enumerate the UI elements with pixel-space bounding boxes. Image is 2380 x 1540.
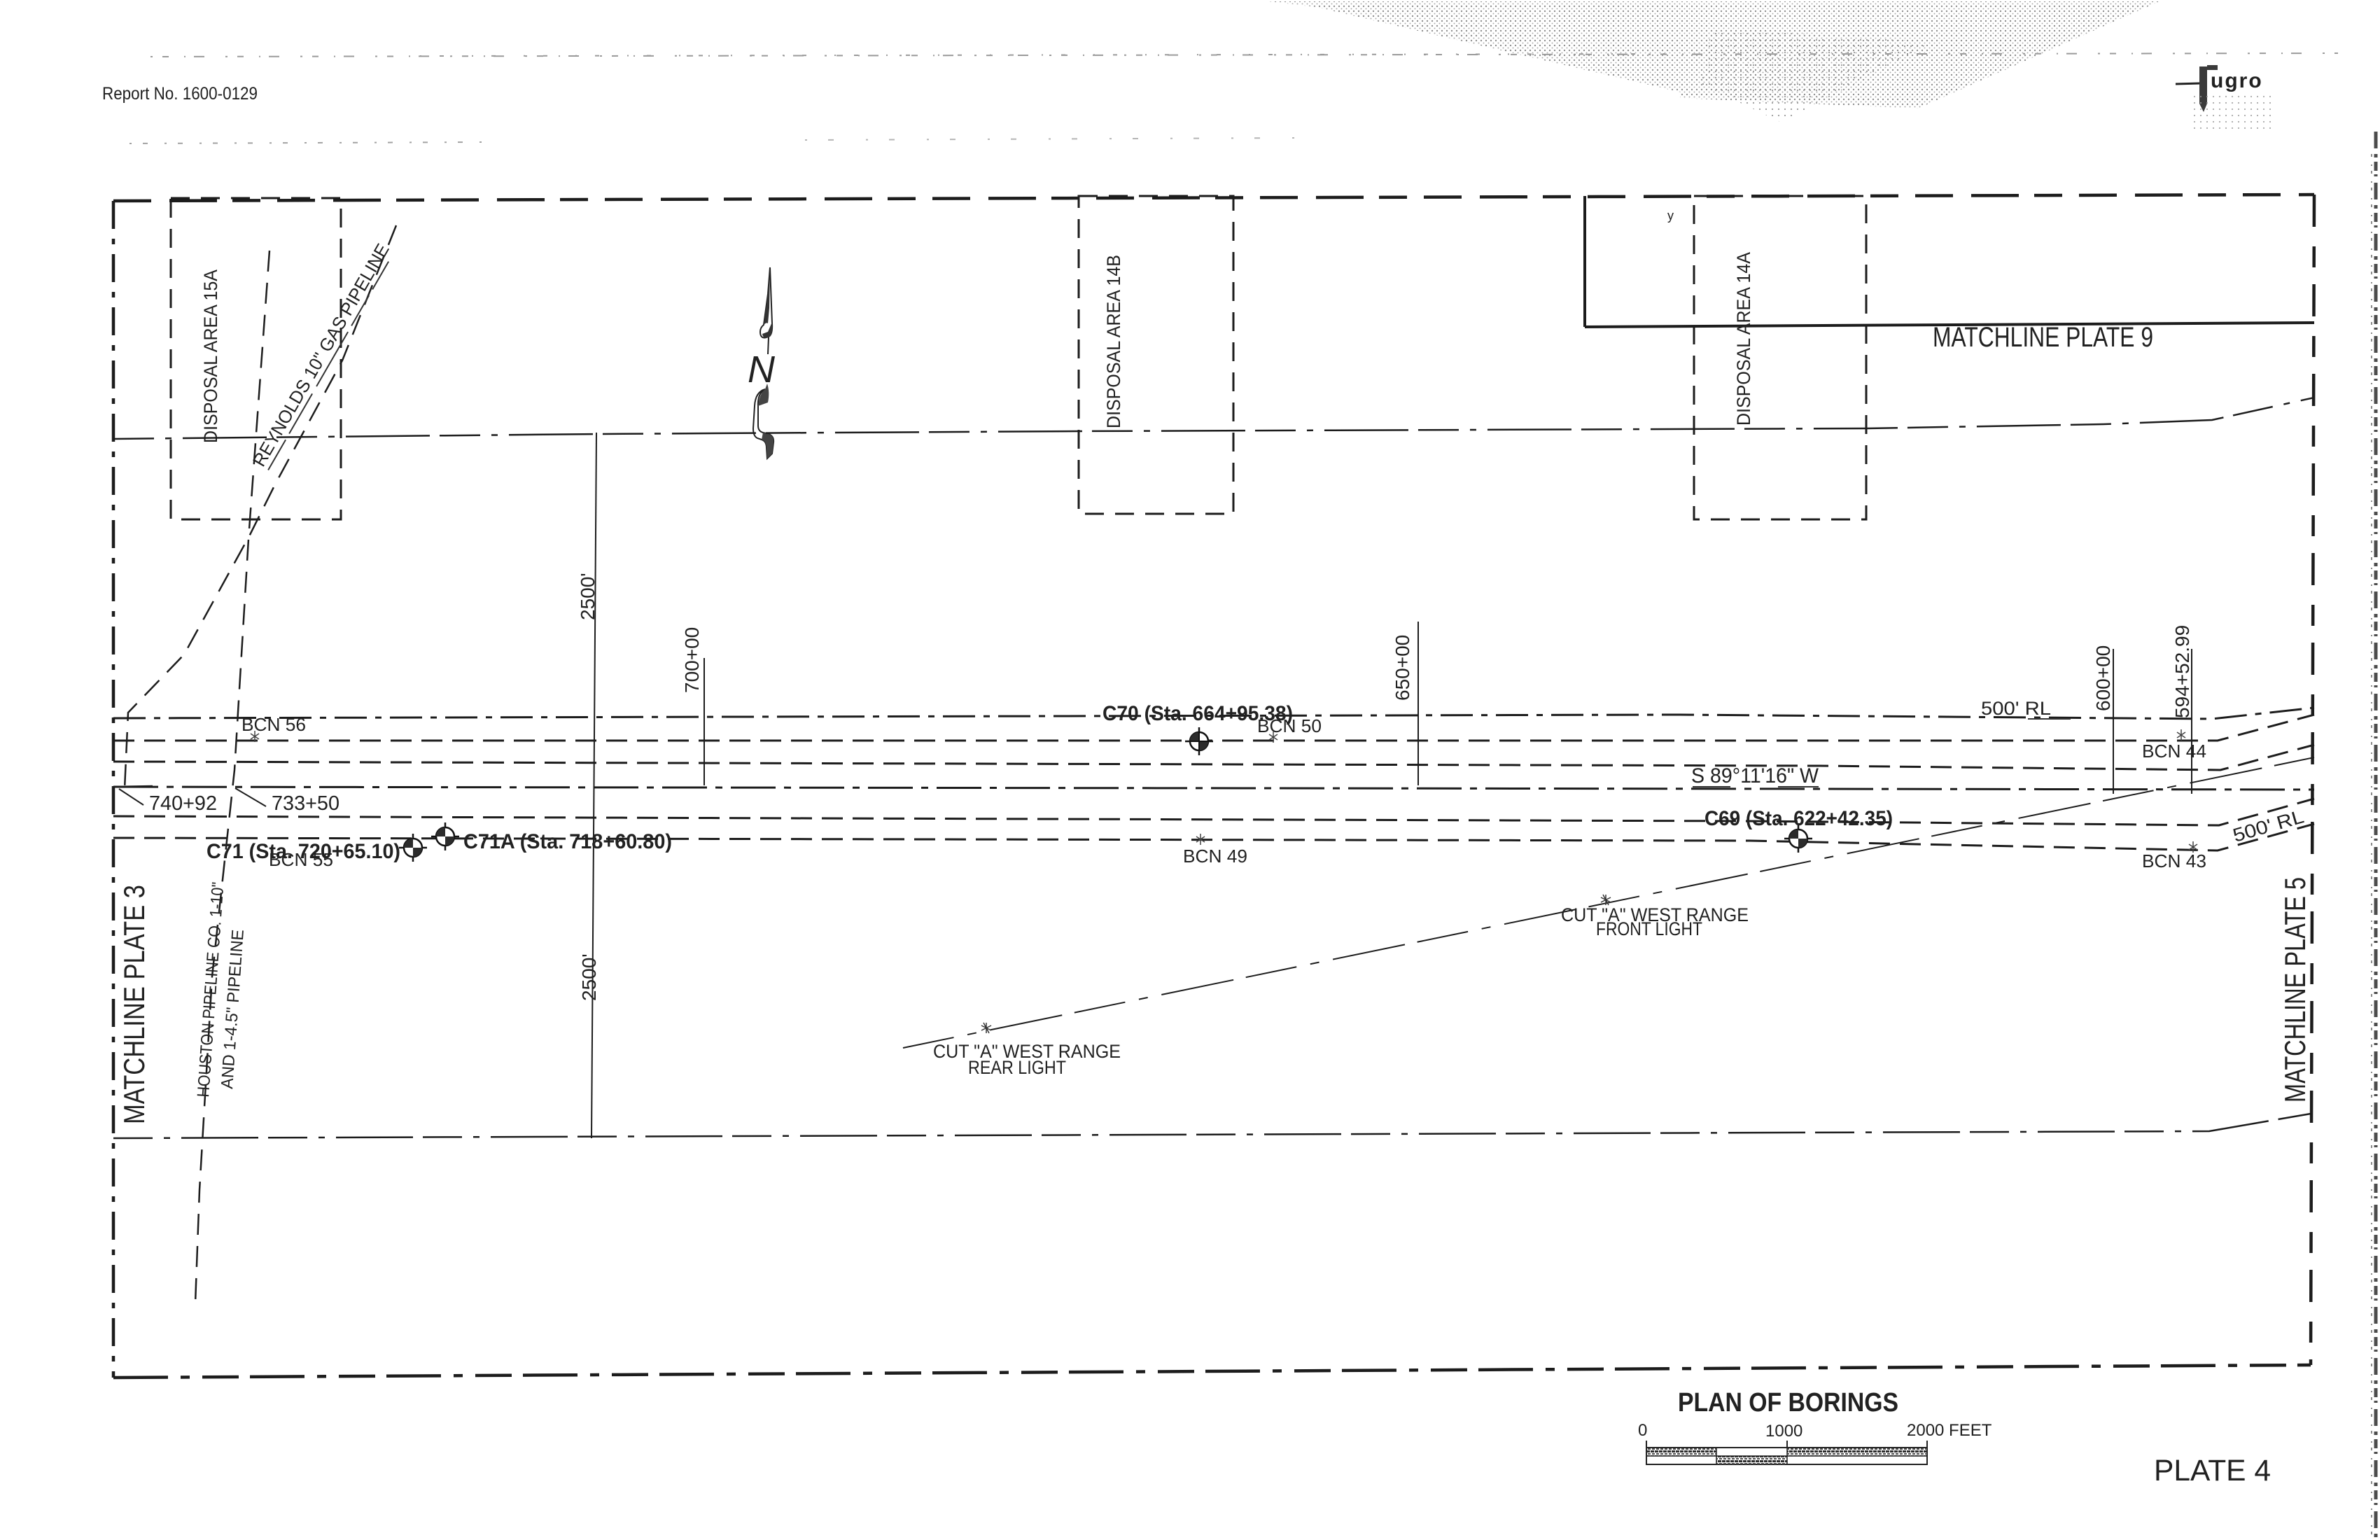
svg-text:740+92: 740+92 (149, 792, 217, 815)
svg-text:DISPOSAL AREA 15A: DISPOSAL AREA 15A (200, 269, 221, 443)
svg-text:PLATE 4: PLATE 4 (2154, 1454, 2271, 1487)
svg-text:1000: 1000 (1765, 1422, 1802, 1441)
svg-text:BCN 44: BCN 44 (2142, 741, 2206, 762)
svg-text:N: N (748, 349, 776, 391)
svg-text:C70 (Sta. 664+95.38): C70 (Sta. 664+95.38) (1102, 702, 1293, 725)
svg-text:2500': 2500' (577, 573, 598, 620)
svg-text:594+52.99: 594+52.99 (2171, 625, 2193, 718)
svg-text:MATCHLINE PLATE 3: MATCHLINE PLATE 3 (118, 885, 150, 1124)
svg-text:0: 0 (1638, 1421, 1647, 1440)
svg-text:y: y (1667, 209, 1674, 223)
svg-text:C69 (Sta. 622+42.35): C69 (Sta. 622+42.35) (1704, 807, 1893, 830)
svg-text:700+00: 700+00 (681, 627, 703, 693)
svg-text:2500': 2500' (578, 953, 600, 1001)
svg-text:DISPOSAL AREA 14B: DISPOSAL AREA 14B (1103, 255, 1124, 428)
svg-text:DISPOSAL AREA 14A: DISPOSAL AREA 14A (1733, 252, 1754, 426)
svg-text:733+50: 733+50 (272, 792, 339, 815)
svg-text:C71 (Sta. 720+65.10): C71 (Sta. 720+65.10) (206, 840, 400, 863)
svg-text:REAR LIGHT: REAR LIGHT (968, 1057, 1066, 1078)
svg-text:ugro: ugro (2211, 69, 2263, 92)
svg-text:MATCHLINE PLATE 9: MATCHLINE PLATE 9 (1933, 322, 2153, 353)
svg-text:FRONT LIGHT: FRONT LIGHT (1596, 918, 1702, 939)
svg-text:BCN 43: BCN 43 (2142, 850, 2206, 871)
svg-text:2000 FEET: 2000 FEET (1907, 1421, 1992, 1440)
svg-text:PLAN OF BORINGS: PLAN OF BORINGS (1678, 1388, 1898, 1417)
svg-text:MATCHLINE PLATE 5: MATCHLINE PLATE 5 (2278, 877, 2311, 1102)
svg-text:S 89°11'16" W: S 89°11'16" W (1691, 764, 1819, 787)
svg-text:500' RL: 500' RL (1981, 698, 2051, 719)
svg-text:650+00: 650+00 (1392, 635, 1413, 701)
svg-text:C71A (Sta. 718+60.80): C71A (Sta. 718+60.80) (463, 830, 672, 853)
svg-text:BCN 56: BCN 56 (241, 714, 306, 735)
svg-text:Report No. 1600-0129: Report No. 1600-0129 (102, 84, 258, 104)
svg-text:BCN 49: BCN 49 (1183, 846, 1247, 867)
svg-text:600+00: 600+00 (2092, 645, 2114, 711)
